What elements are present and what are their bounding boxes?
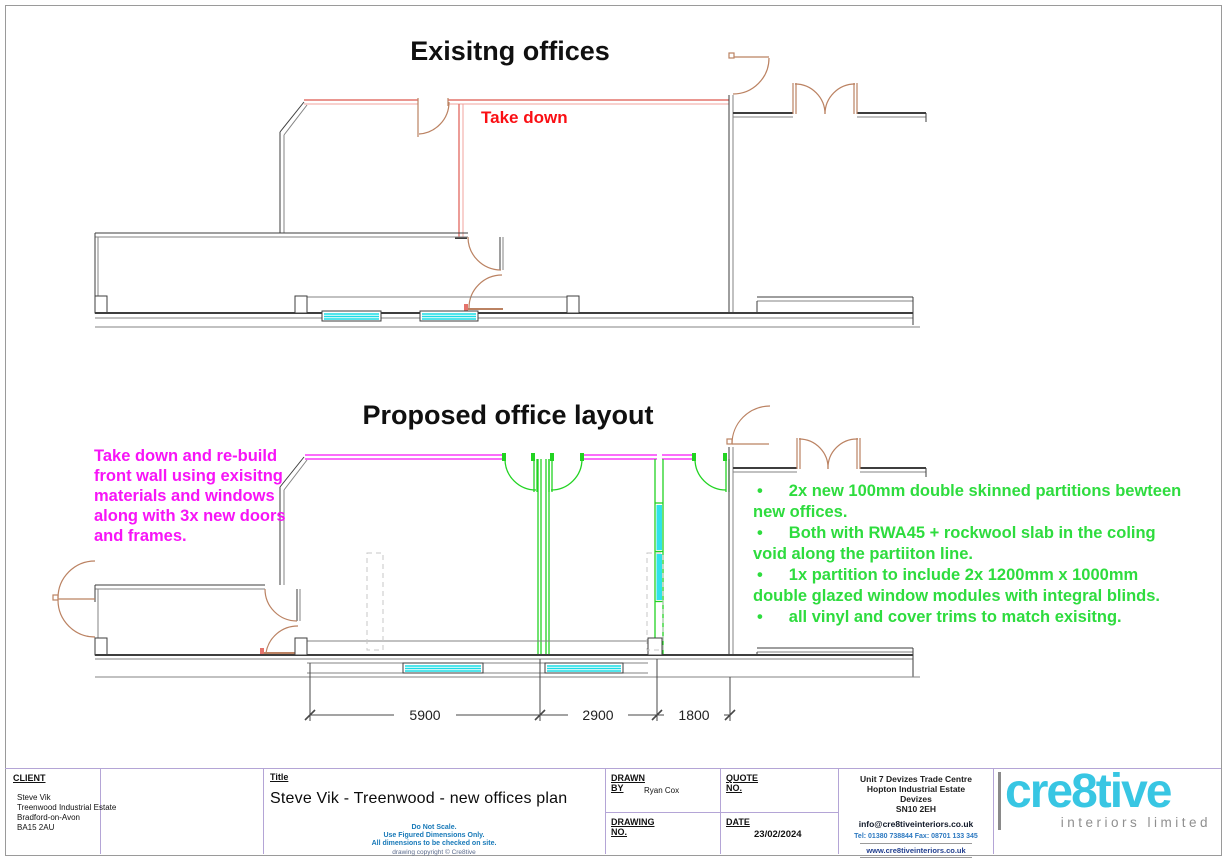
scale-note-line: Use Figured Dimensions Only. [264,832,604,840]
logo-text-block: cre8tive interiors limited [1005,770,1211,830]
titleblock-divider [993,768,994,854]
dimension-2900: 2900 [568,707,628,723]
bullet-text: Both with RWA45 + rockwool slab in the c… [753,524,1156,563]
scale-note-line: Do Not Scale. [264,824,604,832]
proposed-window-1 [403,663,483,673]
logo-bar [998,772,1001,830]
title-label: Title [270,772,288,782]
company-email: info@cre8tiveinteriors.co.uk [841,819,991,829]
existing-plan-drawing [95,53,926,327]
bullet-dot: • [757,481,763,502]
proposed-plan-title: Proposed office layout [288,400,728,431]
bullet-text: 1x partition to include 2x 1200mm x 1000… [753,566,1160,605]
drawing-no-label: DRAWING NO. [611,817,666,837]
bullet-dot: • [757,565,763,586]
existing-entrance-double-doors [793,83,857,114]
bullet-dot: • [757,607,763,628]
new-door-1 [505,459,537,492]
proposed-inner-door [260,589,300,655]
company-address-line: SN10 2EH [841,804,991,814]
new-door-3 [695,459,729,492]
existing-window-1 [322,311,381,321]
front-wall-note: Take down and re-build front wall using … [94,446,294,546]
drawing-sheet: Exisitng offices Take down Proposed offi… [0,0,1226,859]
existing-inner-door [464,237,503,311]
company-phone: Tel: 01380 738844 Fax: 08701 133 345 [841,833,991,840]
note-bullet-item: •Both with RWA45 + rockwool slab in the … [753,523,1189,565]
client-line: Bradford-on-Avon [17,813,116,823]
partition-notes: •2x new 100mm double skinned partitions … [753,481,1189,628]
bullet-dot: • [757,523,763,544]
existing-front-door [418,102,449,137]
logo-wordmark: cre8tive [1005,770,1211,814]
client-label: CLIENT [13,773,46,783]
proposed-west-entrance-door [53,561,95,637]
note-bullet-item: •2x new 100mm double skinned partitions … [753,481,1189,523]
existing-window-2 [420,311,478,321]
company-address-line: Unit 7 Devizes Trade Centre [841,774,991,784]
company-website: www.cre8tiveinteriors.co.uk [860,843,971,858]
dimension-1800: 1800 [664,707,724,723]
existing-left-room [95,233,468,313]
titleblock-divider [605,768,606,854]
company-address-line: Devizes [841,794,991,804]
quote-no-label: QUOTE NO. [726,773,771,793]
new-door-jambs [502,453,727,461]
existing-bottom-wall [95,296,920,327]
titleblock-divider [838,768,839,854]
proposed-bottom-wall [95,638,920,677]
existing-plan-title: Exisitng offices [290,36,730,67]
proposed-top-door [727,406,770,444]
bullet-text: all vinyl and cover trims to match exisi… [789,608,1122,626]
proposed-front-wall-magenta [305,455,696,459]
proposed-top-right-wall [733,468,926,477]
bullet-text: 2x new 100mm double skinned partitions b… [753,482,1181,521]
client-line: Treenwood Industrial Estate [17,803,116,813]
note-bullet-item: •1x partition to include 2x 1200mm x 100… [753,565,1189,607]
scale-notes: Do Not Scale. Use Figured Dimensions Onl… [264,824,604,857]
dimension-5900: 5900 [395,707,455,723]
existing-items-dashed [367,553,663,650]
existing-corridor-wall [729,95,733,313]
company-address-block: Unit 7 Devizes Trade Centre Hopton Indus… [841,774,991,858]
scale-note-line: All dimensions to be checked on site. [264,840,604,848]
proposed-entrance-double-doors [797,438,860,469]
date-value: 23/02/2024 [754,829,802,840]
titleblock-divider [720,768,721,854]
note-bullet-item: •all vinyl and cover trims to match exis… [753,607,1189,628]
new-door-2 [549,459,582,492]
proposed-window-2 [545,663,623,673]
existing-top-door [729,53,769,94]
company-address-line: Hopton Industrial Estate [841,784,991,794]
client-line: Steve Vik [17,793,116,803]
take-down-partition [455,104,467,238]
copyright-note: drawing copyright © Cre8tive [264,849,604,857]
existing-top-right-wall [733,113,926,122]
client-line: BA15 2AU [17,823,116,833]
date-label: DATE [726,817,750,827]
drawing-title: Steve Vik - Treenwood - new offices plan [270,790,567,808]
titleblock-row-divider [605,812,838,813]
new-partition-1 [538,459,549,655]
drawn-by-value: Ryan Cox [644,786,679,795]
take-down-label: Take down [481,108,568,128]
existing-front-wall-red [304,98,729,106]
client-address: Steve Vik Treenwood Industrial Estate Br… [17,793,116,833]
existing-left-wall [280,102,307,233]
proposed-left-room [95,585,265,655]
